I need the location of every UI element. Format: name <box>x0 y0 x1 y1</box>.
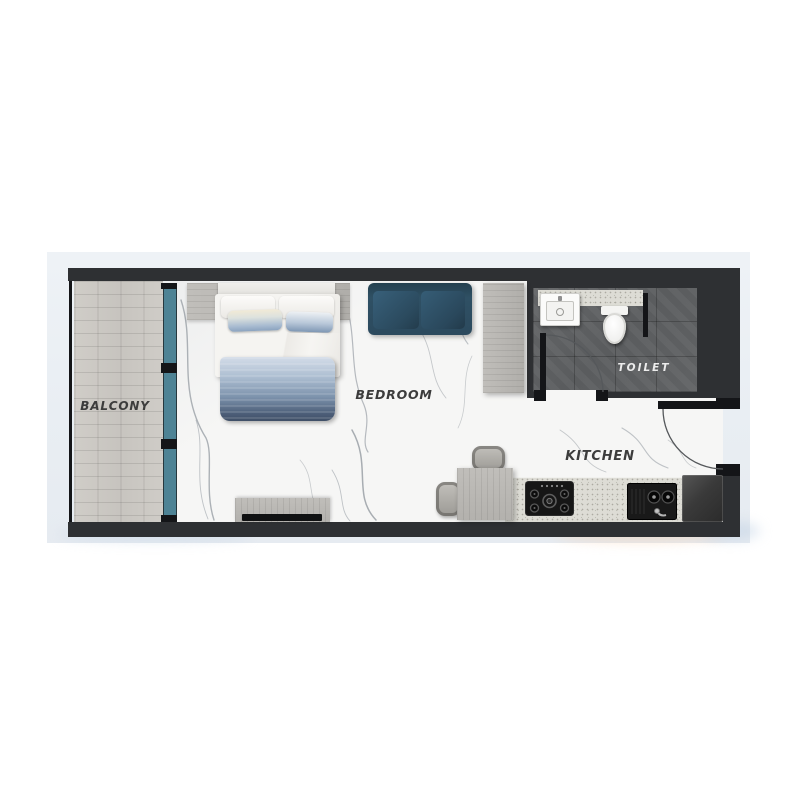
floor-plan: BALCONY BEDROOM KITCHEN TOILET <box>0 0 800 800</box>
entrance-door-arc <box>663 409 723 469</box>
label-toilet: TOILET <box>604 362 684 374</box>
label-bedroom: BEDROOM <box>344 387 444 402</box>
label-kitchen: KITCHEN <box>550 449 650 464</box>
toilet-door-arc <box>546 335 603 392</box>
label-balcony: BALCONY <box>70 399 160 413</box>
